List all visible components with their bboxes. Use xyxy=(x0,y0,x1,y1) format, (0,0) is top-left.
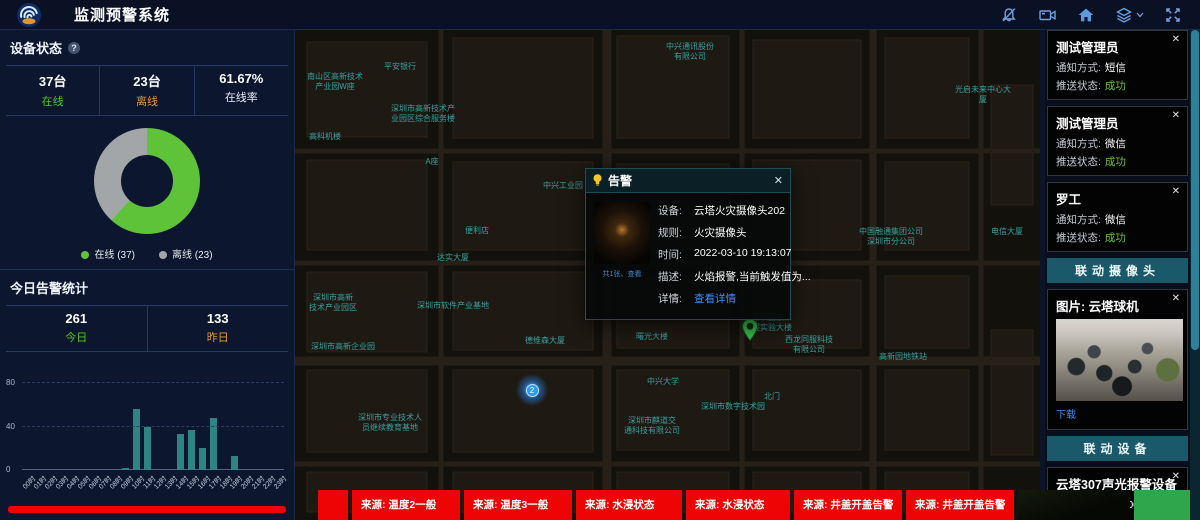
location-pin-icon[interactable] xyxy=(741,318,759,342)
device-status-table: 37台 在线 23台 离线 61.67% 在线率 xyxy=(6,65,288,116)
map-label: 深圳市高新 技术产业园区 xyxy=(309,293,357,313)
bar xyxy=(199,448,206,470)
bottom-alert-bar: 来源: 温度2一般来源: 温度3一般来源: 水浸状态来源: 水浸状态来源: 井盖… xyxy=(295,490,1200,520)
map-label: 中兴通讯股份 有限公司 xyxy=(666,42,714,62)
status-cell-online: 37台 在线 xyxy=(6,66,99,115)
city-map[interactable]: 中兴通讯股份 有限公司平安银行南山区高新技术 产业园W座光启未来中心大厦深圳市高… xyxy=(295,30,1040,520)
page-title: 监测预警系统 xyxy=(74,4,170,25)
device-donut xyxy=(94,128,200,234)
video-camera-icon[interactable] xyxy=(1038,6,1057,24)
map-label: 平安银行 xyxy=(384,62,416,72)
close-icon[interactable]: ✕ xyxy=(1172,186,1180,197)
map-label: 中兴大学 xyxy=(647,377,679,387)
map-label: 中国融通集团公司 深圳市分公司 xyxy=(859,227,923,247)
y-tick-label: 40 xyxy=(6,422,15,431)
map-label: 西龙同服科技 有限公司 xyxy=(785,335,833,355)
cluster-marker[interactable]: 2 xyxy=(515,373,549,407)
right-scrollbar[interactable] xyxy=(1190,30,1200,520)
map-label: 深圳市麒道交 通科技有限公司 xyxy=(624,416,680,436)
today-alarm-title: 今日告警统计 xyxy=(0,270,294,301)
camera-snapshot[interactable] xyxy=(1056,319,1183,401)
green-thumbnail[interactable] xyxy=(1134,490,1198,520)
gridline xyxy=(22,426,284,427)
alarm-row-device: 设备:云塔火灾摄像头202 xyxy=(658,203,811,218)
alert-source-tile[interactable]: 来源: 井盖开盖告警 xyxy=(906,490,1014,520)
close-icon[interactable]: ✕ xyxy=(774,174,783,187)
x-axis-labels: 00时01时02时03时04时05时06时07时08时09时10时11时12时1… xyxy=(22,472,284,498)
gridline xyxy=(22,382,284,383)
status-cell-offline: 23台 离线 xyxy=(99,66,193,115)
close-icon[interactable]: ✕ xyxy=(1172,34,1180,45)
y-tick-label: 0 xyxy=(6,465,10,474)
left-sidebar: 设备状态 ? 37台 在线 23台 离线 61.67% 在线率 在线 (37) … xyxy=(0,30,295,520)
view-detail-link[interactable]: 查看详情 xyxy=(694,291,811,306)
scrollbar-thumb[interactable] xyxy=(1191,30,1199,350)
today-alarm-section: 今日告警统计 261 今日 133 昨日 00时01时02时03时04时05时0… xyxy=(0,269,294,520)
app-logo-icon xyxy=(16,2,42,28)
map-label: 深圳市高新企业园 xyxy=(311,342,375,352)
map-label: 深圳市软件产业基地 xyxy=(417,301,489,311)
map-label: 深圳市高新技术产 业园区综合服务楼 xyxy=(391,104,455,124)
right-sidebar: ✕ 测试管理员 通知方式:短信 推送状态:成功 ✕ 测试管理员 通知方式:微信 … xyxy=(1045,30,1190,520)
fullscreen-icon[interactable] xyxy=(1164,6,1182,24)
bar xyxy=(231,456,238,470)
map-label: 德维森大厦 xyxy=(525,336,565,346)
video-thumbnail[interactable] xyxy=(1018,490,1130,520)
alert-source-tile[interactable]: 来源: 水浸状态 xyxy=(576,490,682,520)
linked-devices-header: 联动设备 xyxy=(1047,436,1188,461)
alert-source-tile[interactable]: 来源: 井盖开盖告警 xyxy=(794,490,902,520)
status-cell-rate: 61.67% 在线率 xyxy=(194,66,288,115)
layers-icon[interactable] xyxy=(1115,6,1133,24)
map-label: 便利店 xyxy=(465,226,489,236)
alert-tiles: 来源: 温度2一般来源: 温度3一般来源: 水浸状态来源: 水浸状态来源: 井盖… xyxy=(318,490,1014,520)
y-tick-label: 80 xyxy=(6,378,15,387)
alarm-row-detail: 详情:查看详情 xyxy=(658,291,811,306)
map-label: 电信大厦 xyxy=(991,227,1023,237)
map-label: 中兴工业园 xyxy=(543,181,583,191)
alert-source-tile[interactable]: 来源: 水浸状态 xyxy=(686,490,790,520)
app-header: 监测预警系统 xyxy=(0,0,1200,30)
unhandled-progress-bar xyxy=(8,506,286,513)
alarm-row-rule: 规则:火灾摄像头 xyxy=(658,225,811,240)
map-label: 光启未来中心大厦 xyxy=(955,85,1012,105)
alarm-popup: 告警 ✕ 共1张、查看 设备:云塔火灾摄像头202 规则:火灾摄像头 时间:20… xyxy=(585,168,791,320)
notification-card: ✕ 测试管理员 通知方式:短信 推送状态:成功 xyxy=(1047,30,1188,100)
alert-source-tile[interactable]: 来源: 温度2一般 xyxy=(352,490,460,520)
bar xyxy=(122,468,129,470)
close-icon[interactable]: ✕ xyxy=(1172,110,1180,121)
camera-card: ✕ 图片: 云塔球机 下载 xyxy=(1047,289,1188,430)
chevron-down-icon[interactable] xyxy=(1136,12,1144,18)
map-label: 深圳市数字技术园 xyxy=(701,402,765,412)
today-alarm-table: 261 今日 133 昨日 xyxy=(6,305,288,352)
legend-dot-offline xyxy=(159,251,167,259)
map-label: 曙光大楼 xyxy=(636,332,668,342)
yesterday-cell: 133 昨日 xyxy=(147,306,289,351)
today-cell: 261 今日 xyxy=(6,306,147,351)
alert-source-tile[interactable]: 来源: 温度3一般 xyxy=(464,490,572,520)
map-label: 达实大厦 xyxy=(437,253,469,263)
bar xyxy=(188,430,195,470)
bar xyxy=(177,434,184,470)
map-label: 高新园地铁站 xyxy=(879,352,927,362)
bars-area xyxy=(22,360,284,470)
alarm-popup-title: 告警 xyxy=(608,172,632,189)
legend-dot-online xyxy=(81,251,89,259)
alert-source-tile[interactable] xyxy=(318,490,348,520)
device-status-title: 设备状态 ? xyxy=(0,30,294,61)
notification-card: ✕ 测试管理员 通知方式:微信 推送状态:成功 xyxy=(1047,106,1188,176)
map-label: 北门 xyxy=(764,392,780,402)
download-link[interactable]: 下载 xyxy=(1056,406,1076,421)
map-label: 南山区高新技术 产业园W座 xyxy=(307,72,363,92)
alarm-popup-body: 共1张、查看 设备:云塔火灾摄像头202 规则:火灾摄像头 时间:2022-03… xyxy=(586,193,790,319)
linked-cameras-header: 联动摄像头 xyxy=(1047,258,1188,283)
map-label: 深圳市专业技术人 员继续教育基地 xyxy=(358,413,422,433)
alarm-popup-header: 告警 ✕ xyxy=(586,169,790,193)
bar xyxy=(133,409,140,470)
close-icon[interactable]: ✕ xyxy=(1172,293,1180,304)
map-label: 高科机楼 xyxy=(309,132,341,142)
home-icon[interactable] xyxy=(1077,6,1095,24)
bar xyxy=(144,427,151,471)
notification-card: ✕ 罗工 通知方式:微信 推送状态:成功 xyxy=(1047,182,1188,252)
progress-legend: 未处理(261个) 已处理(0个) xyxy=(0,513,294,520)
close-icon[interactable]: ✕ xyxy=(1172,471,1180,482)
today-alarm-bar-chart: 00时01时02时03时04时05时06时07时08时09时10时11时12时1… xyxy=(0,356,294,498)
alarm-row-desc: 描述:火焰报警,当前触发值为... xyxy=(658,269,811,284)
donut-legend: 在线 (37) 离线 (23) xyxy=(0,246,294,261)
help-icon[interactable]: ? xyxy=(68,42,80,54)
map-label: A座 xyxy=(425,157,438,167)
bell-muted-icon[interactable] xyxy=(1000,6,1018,24)
alarm-snapshot[interactable] xyxy=(594,202,650,264)
alarm-snapshot-caption[interactable]: 共1张、查看 xyxy=(594,269,650,279)
alarm-row-time: 时间:2022-03-10 19:13:07 xyxy=(658,247,811,262)
alarm-bulb-icon xyxy=(593,174,602,187)
